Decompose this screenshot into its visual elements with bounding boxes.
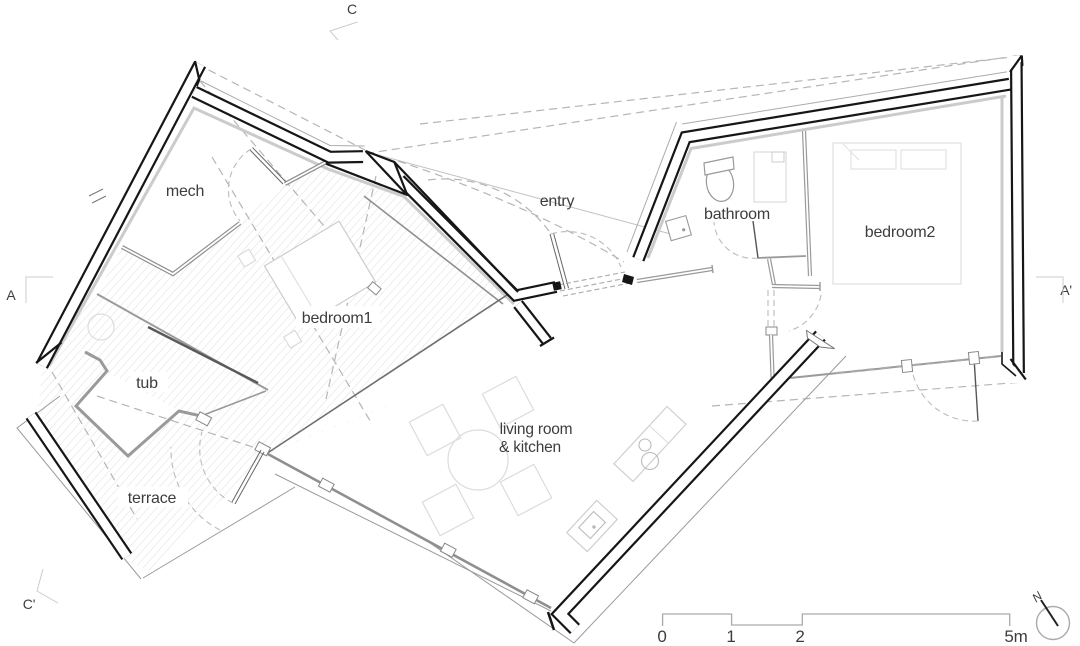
svg-text:A': A' bbox=[1060, 282, 1072, 298]
svg-text:bathroom: bathroom bbox=[704, 206, 770, 223]
svg-text:A: A bbox=[6, 287, 16, 303]
svg-text:2: 2 bbox=[795, 627, 804, 646]
svg-text:bedroom1: bedroom1 bbox=[302, 310, 373, 327]
svg-text:entry: entry bbox=[540, 193, 575, 210]
svg-text:living room: living room bbox=[500, 421, 573, 438]
svg-text:tub: tub bbox=[136, 375, 158, 392]
svg-text:0: 0 bbox=[657, 627, 666, 646]
svg-text:C': C' bbox=[23, 596, 35, 612]
svg-text:C: C bbox=[347, 1, 357, 17]
svg-text:mech: mech bbox=[166, 183, 204, 200]
svg-text:terrace: terrace bbox=[128, 490, 177, 507]
svg-text:bedroom2: bedroom2 bbox=[865, 224, 936, 241]
svg-text:1: 1 bbox=[726, 627, 735, 646]
svg-text:& kitchen: & kitchen bbox=[499, 439, 561, 456]
svg-text:5m: 5m bbox=[1004, 627, 1027, 646]
